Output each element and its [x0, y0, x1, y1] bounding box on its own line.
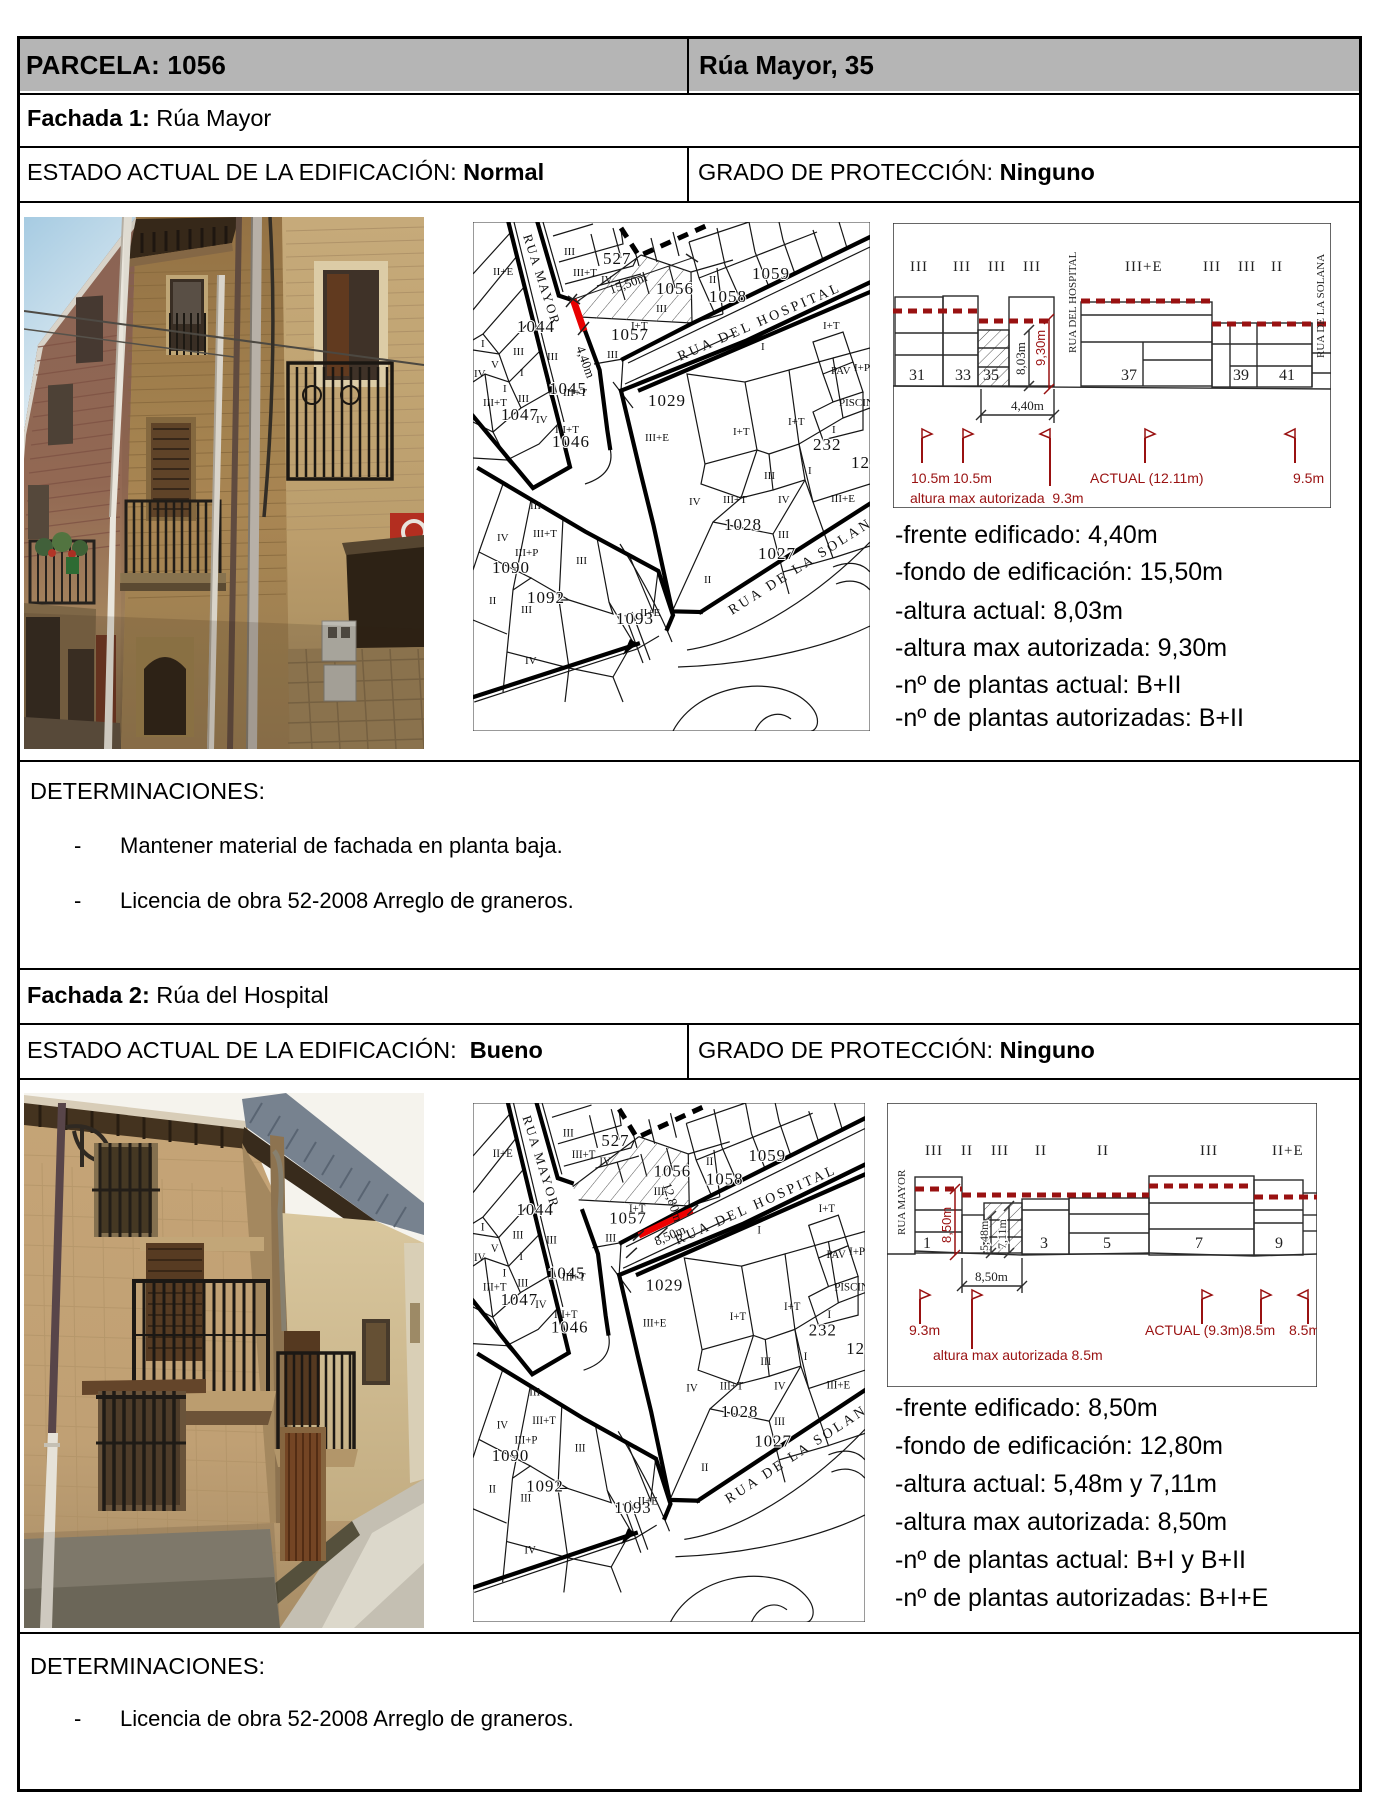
svg-text:II: II	[961, 1143, 973, 1159]
svg-text:III: III	[1200, 1143, 1218, 1159]
svg-text:10.5m: 10.5m	[953, 470, 992, 486]
svg-text:I: I	[503, 383, 507, 395]
svg-text:III: III	[953, 259, 971, 275]
svg-text:1028: 1028	[724, 515, 762, 534]
svg-text:4,40m: 4,40m	[1011, 398, 1044, 413]
svg-text:I: I	[761, 341, 765, 353]
svg-text:III+P: III+P	[515, 547, 538, 559]
svg-text:I+T: I+T	[733, 426, 750, 438]
svg-text:37: 37	[1121, 367, 1137, 384]
svg-text:III+E: III+E	[831, 493, 855, 505]
svg-text:5,48m: 5,48m	[977, 1220, 991, 1251]
svg-text:IV: IV	[474, 368, 486, 380]
svg-text:IV: IV	[525, 655, 537, 667]
svg-text:II+E: II+E	[1272, 1143, 1304, 1159]
svg-text:III: III	[607, 349, 618, 361]
svg-text:II: II	[704, 574, 712, 586]
svg-text:1233: 1233	[851, 453, 870, 472]
svg-text:IV: IV	[689, 496, 701, 508]
svg-text:III+T: III+T	[533, 528, 557, 540]
svg-text:39: 39	[1233, 367, 1249, 384]
svg-text:8,50m: 8,50m	[975, 1269, 1008, 1284]
svg-text:III: III	[530, 500, 541, 512]
svg-text:II: II	[1035, 1143, 1047, 1159]
svg-text:10.5m: 10.5m	[911, 470, 950, 486]
svg-text:III: III	[1238, 259, 1256, 275]
svg-text:I: I	[520, 367, 524, 379]
svg-text:III: III	[988, 259, 1006, 275]
svg-text:II: II	[1271, 259, 1283, 275]
svg-text:9.3m: 9.3m	[909, 1322, 940, 1338]
svg-text:RUA DE LA SOLANA: RUA DE LA SOLANA	[1315, 254, 1327, 358]
svg-text:III+E: III+E	[1125, 259, 1163, 275]
svg-text:altura max autorizada 9.3m: altura max autorizada 9.3m	[910, 490, 1084, 506]
svg-text:I+P: I+P	[854, 362, 870, 374]
svg-text:III+T: III+T	[483, 397, 507, 409]
svg-text:II: II	[709, 274, 717, 286]
svg-text:II: II	[1097, 1143, 1109, 1159]
svg-text:III+T: III+T	[573, 267, 597, 279]
svg-text:III: III	[521, 604, 532, 616]
svg-text:9: 9	[1275, 1235, 1283, 1252]
svg-text:III: III	[513, 346, 524, 358]
svg-text:III: III	[576, 555, 587, 567]
svg-text:III: III	[925, 1143, 943, 1159]
svg-text:9,30m: 9,30m	[1033, 330, 1048, 366]
svg-text:ACTUAL (12.11m): ACTUAL (12.11m)	[1090, 470, 1204, 486]
svg-text:8,03m: 8,03m	[1013, 342, 1028, 375]
svg-text:IV: IV	[778, 494, 790, 506]
svg-text:232: 232	[813, 435, 842, 454]
svg-text:III: III	[991, 1143, 1009, 1159]
svg-text:527: 527	[603, 249, 632, 268]
svg-text:V: V	[491, 359, 499, 371]
svg-text:I+T: I+T	[631, 320, 648, 332]
svg-text:RUA MAYOR: RUA MAYOR	[896, 1169, 908, 1235]
svg-text:IV: IV	[497, 532, 509, 544]
svg-text:I+T: I+T	[823, 320, 840, 332]
svg-text:PISCINA: PISCINA	[839, 397, 870, 409]
svg-text:1056: 1056	[656, 279, 694, 298]
svg-text:33: 33	[955, 367, 971, 384]
svg-text:III: III	[1023, 259, 1041, 275]
svg-text:1029: 1029	[648, 391, 686, 410]
svg-text:I: I	[808, 465, 812, 477]
svg-text:1058: 1058	[709, 287, 747, 306]
svg-text:II+E: II+E	[493, 266, 514, 278]
svg-text:IV: IV	[536, 414, 548, 426]
svg-text:II+E: II+E	[640, 607, 661, 619]
svg-text:III: III	[656, 303, 667, 315]
svg-text:31: 31	[909, 367, 925, 384]
svg-text:7,11m: 7,11m	[995, 1218, 1009, 1249]
svg-text:III: III	[1203, 259, 1221, 275]
svg-text:1092: 1092	[527, 588, 565, 607]
svg-text:III: III	[518, 393, 529, 405]
svg-text:III: III	[547, 351, 558, 363]
svg-text:1059: 1059	[752, 264, 790, 283]
svg-text:III+E: III+E	[645, 432, 669, 444]
svg-text:II: II	[489, 595, 497, 607]
svg-text:41: 41	[1279, 367, 1295, 384]
svg-text:8.5m: 8.5m	[1244, 1322, 1275, 1338]
svg-text:9.5m: 9.5m	[1293, 470, 1324, 486]
svg-text:I+T: I+T	[788, 416, 805, 428]
svg-text:35: 35	[983, 367, 999, 384]
svg-text:I: I	[481, 338, 485, 350]
svg-text:I: I	[832, 424, 836, 436]
svg-text:III: III	[910, 259, 928, 275]
svg-text:8.5m: 8.5m	[1289, 1322, 1317, 1338]
svg-text:altura max autorizada 8.5m: altura max autorizada 8.5m	[933, 1347, 1103, 1363]
svg-text:III: III	[778, 529, 789, 541]
svg-text:ACTUAL (9.3m): ACTUAL (9.3m)	[1145, 1322, 1244, 1338]
svg-text:3: 3	[1040, 1235, 1048, 1252]
svg-text:RUA DEL HOSPITAL: RUA DEL HOSPITAL	[1067, 251, 1079, 353]
svg-text:8,50m: 8,50m	[939, 1207, 954, 1243]
svg-text:III+T: III+T	[555, 424, 579, 436]
svg-text:III+T: III+T	[723, 494, 747, 506]
svg-text:1027: 1027	[758, 544, 796, 563]
svg-text:PAV: PAV	[831, 365, 851, 377]
svg-text:1: 1	[923, 1235, 931, 1252]
svg-text:1090: 1090	[492, 558, 530, 577]
svg-text:5: 5	[1103, 1235, 1111, 1252]
svg-text:III+T: III+T	[563, 387, 587, 399]
svg-text:III: III	[564, 246, 575, 258]
svg-text:III: III	[764, 470, 775, 482]
svg-text:7: 7	[1195, 1235, 1203, 1252]
